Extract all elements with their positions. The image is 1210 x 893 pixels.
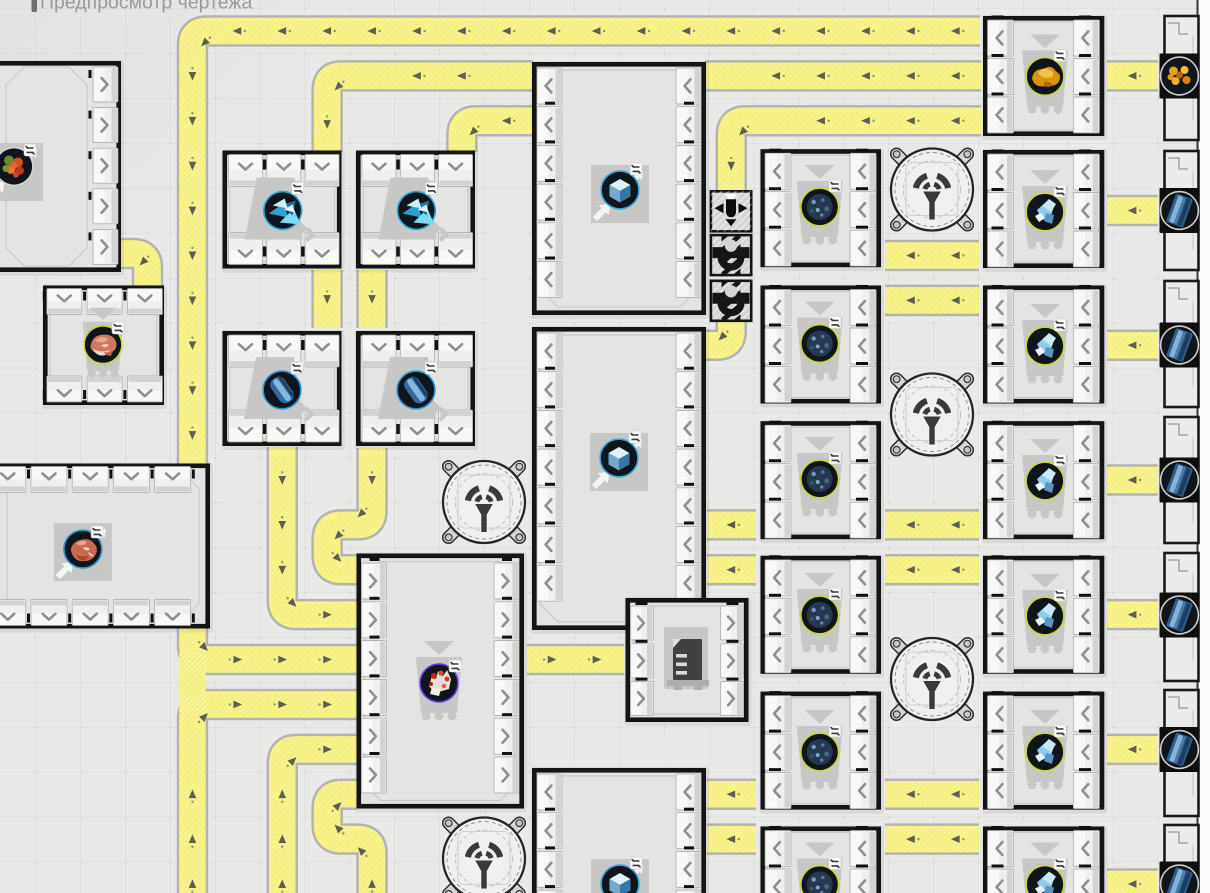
svg-text:Предпросмотр чертежа: Предпросмотр чертежа — [40, 0, 252, 14]
